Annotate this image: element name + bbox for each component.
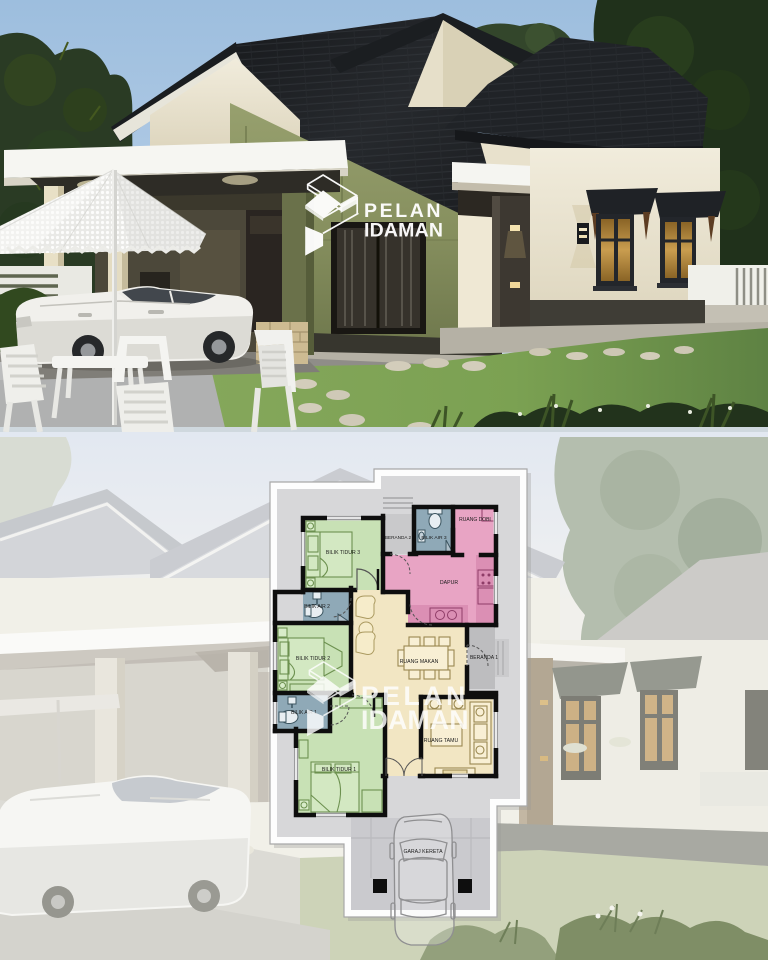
svg-text:IDAMAN: IDAMAN <box>364 220 443 242</box>
svg-text:BERANDA 1: BERANDA 1 <box>470 655 498 661</box>
svg-text:BILIK TIDUR 3: BILIK TIDUR 3 <box>326 550 360 556</box>
svg-text:BILIK TIDUR 2: BILIK TIDUR 2 <box>296 656 330 662</box>
svg-text:BERANDA 2: BERANDA 2 <box>385 535 412 540</box>
svg-text:IDAMAN: IDAMAN <box>361 705 469 735</box>
svg-text:GARAJ KERETA: GARAJ KERETA <box>403 849 443 855</box>
svg-text:BILIK TIDUR 1: BILIK TIDUR 1 <box>322 767 356 773</box>
svg-text:DAPUR: DAPUR <box>440 580 458 586</box>
svg-text:RUANG TAMU: RUANG TAMU <box>424 738 459 744</box>
svg-text:BILIK AIR 3: BILIK AIR 3 <box>421 535 447 541</box>
svg-text:BILIK AIR 2: BILIK AIR 2 <box>304 604 330 610</box>
svg-text:RUANG MAKAN: RUANG MAKAN <box>400 659 439 665</box>
svg-text:RUANG DOBI: RUANG DOBI <box>459 517 491 523</box>
